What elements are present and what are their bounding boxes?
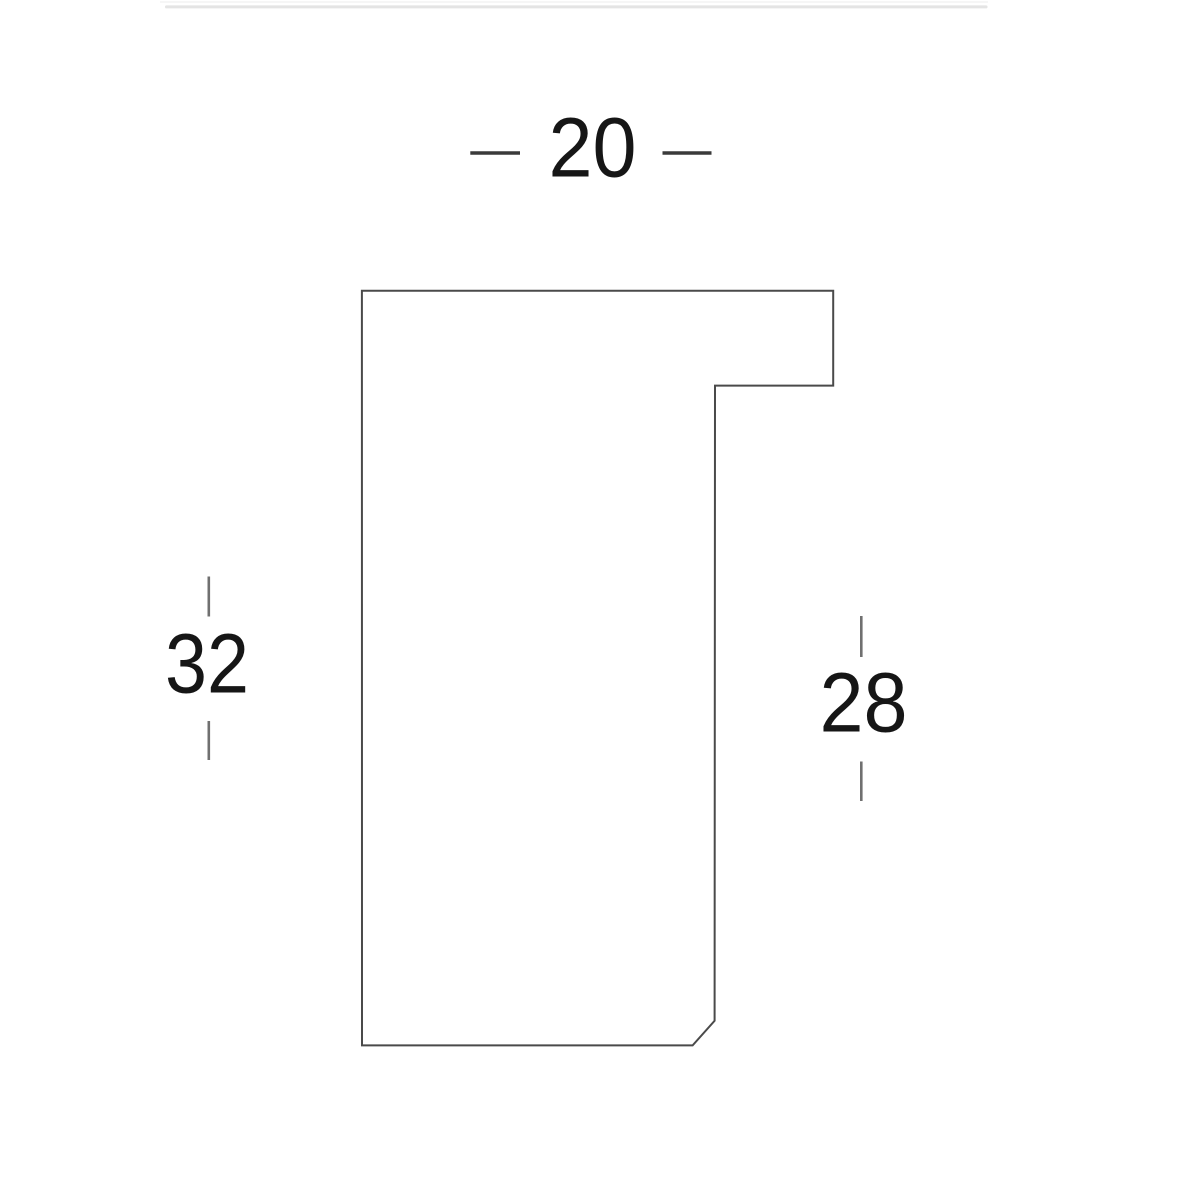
svg-text:32: 32 [165, 617, 249, 711]
svg-text:28: 28 [820, 656, 908, 750]
svg-text:20: 20 [549, 101, 637, 195]
